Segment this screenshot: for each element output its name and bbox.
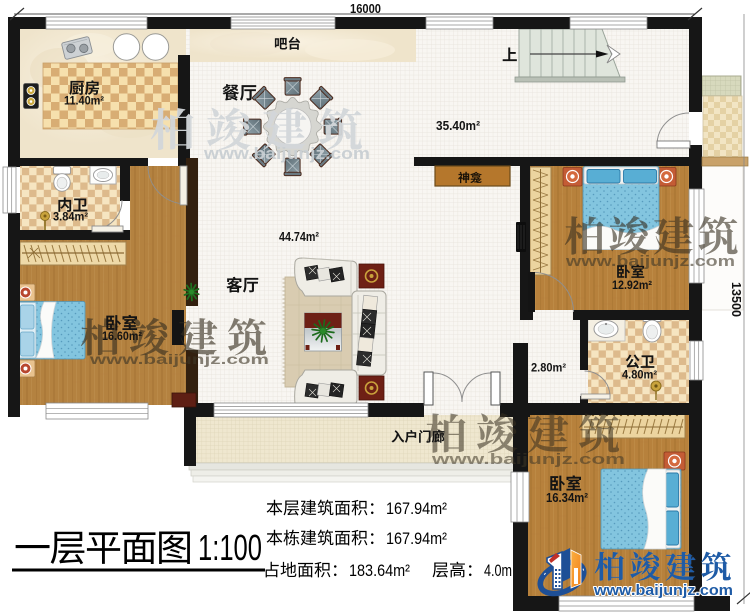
svg-text:www.baijunjz.com: www.baijunjz.com	[203, 145, 370, 163]
svg-text:4.0m: 4.0m	[484, 562, 512, 580]
svg-text:44.74m²: 44.74m²	[279, 229, 320, 244]
svg-text:13500: 13500	[729, 282, 744, 317]
svg-text:183.64m²: 183.64m²	[349, 562, 410, 580]
svg-text:16.60m²: 16.60m²	[102, 329, 142, 343]
svg-text:2.80m²: 2.80m²	[531, 363, 566, 375]
svg-text:3.84m²: 3.84m²	[53, 212, 88, 224]
svg-text:www.baijunjz.com: www.baijunjz.com	[565, 253, 735, 270]
svg-text:167.94m²: 167.94m²	[386, 500, 447, 518]
svg-text:167.94m²: 167.94m²	[386, 530, 447, 548]
svg-text:4.80m²: 4.80m²	[622, 370, 657, 382]
svg-text:www.baijunjz.com: www.baijunjz.com	[89, 351, 269, 367]
svg-text:11.40m²: 11.40m²	[64, 94, 104, 108]
svg-text:35.40m²: 35.40m²	[436, 118, 481, 133]
svg-text:16.34m²: 16.34m²	[546, 491, 588, 505]
svg-text:1:100: 1:100	[198, 527, 262, 568]
svg-text:12.92m²: 12.92m²	[612, 278, 652, 292]
svg-text:16000: 16000	[350, 1, 381, 16]
svg-text:www.baijunjz.com: www.baijunjz.com	[593, 582, 733, 599]
svg-text:www.baijunjz.com: www.baijunjz.com	[430, 452, 625, 468]
